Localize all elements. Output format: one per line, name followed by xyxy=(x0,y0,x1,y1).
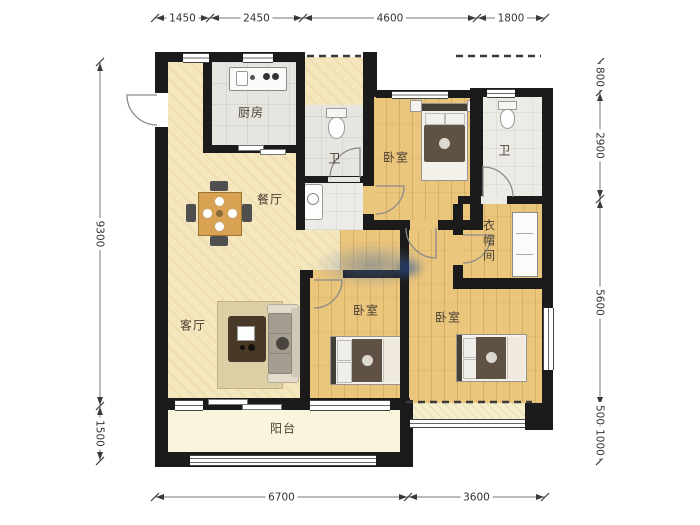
dim-label: 1450 xyxy=(169,13,196,25)
dim-label: 800 xyxy=(594,67,606,87)
dim-label: 500 xyxy=(594,405,606,425)
dimension-lines: 1450245046001800670036009300150080029005… xyxy=(0,0,700,525)
dimension-left: 93001500 xyxy=(94,58,107,465)
dim-label: 2450 xyxy=(243,13,270,25)
dim-label: 2900 xyxy=(594,132,606,159)
dim-label: 1500 xyxy=(94,420,106,447)
dim-label: 1000 xyxy=(594,429,606,456)
dim-label: 9300 xyxy=(94,221,106,248)
dim-label: 5600 xyxy=(594,289,606,316)
dimension-right: 800290056005001000 xyxy=(594,58,607,465)
dimension-top: 1450245046001800 xyxy=(151,12,549,25)
dim-label: 6700 xyxy=(268,492,295,504)
dim-label: 4600 xyxy=(377,13,404,25)
floor-plan: 厨房 卫 卧室 卫 餐厅 衣帽间 客厅 卧室 卧室 阳台 14502450460… xyxy=(0,0,700,525)
dimension-bottom: 67003600 xyxy=(151,491,549,504)
dim-label: 1800 xyxy=(498,13,525,25)
dim-label: 3600 xyxy=(463,492,490,504)
